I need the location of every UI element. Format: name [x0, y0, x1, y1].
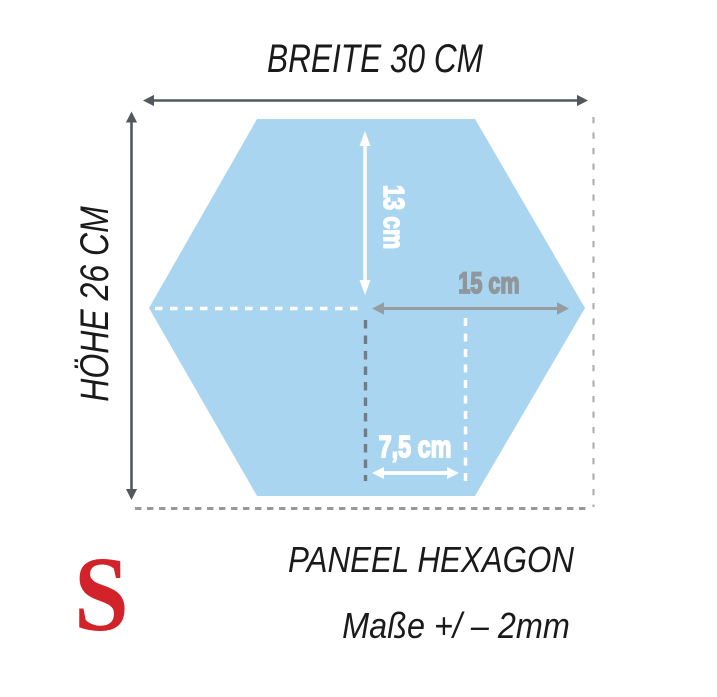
- svg-text:HÖHE 26 CM: HÖHE 26 CM: [72, 205, 117, 401]
- svg-text:Maße +/ – 2mm: Maße +/ – 2mm: [342, 606, 570, 646]
- svg-text:7,5 cm: 7,5 cm: [379, 429, 452, 464]
- svg-text:PANEEL HEXAGON: PANEEL HEXAGON: [288, 540, 575, 581]
- svg-text:BREITE 30 CM: BREITE 30 CM: [267, 35, 484, 80]
- svg-text:15 cm: 15 cm: [458, 265, 519, 299]
- svg-text:S: S: [74, 535, 129, 654]
- svg-text:13 cm: 13 cm: [377, 185, 410, 249]
